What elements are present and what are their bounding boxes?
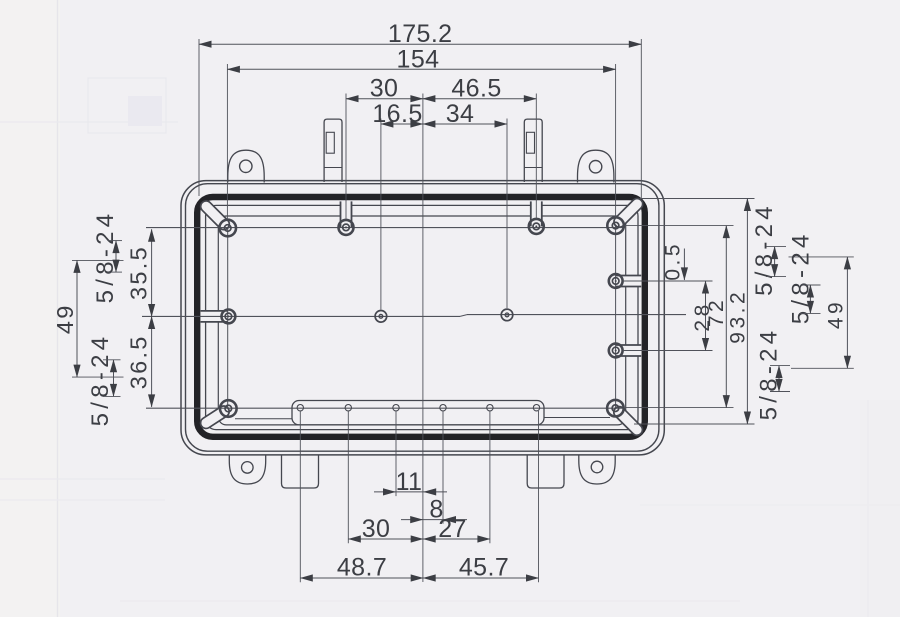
svg-text:5/8-24: 5/8-24 <box>751 202 778 296</box>
svg-text:72: 72 <box>705 297 728 327</box>
svg-text:93.2: 93.2 <box>727 289 750 344</box>
svg-text:45.7: 45.7 <box>459 554 509 582</box>
svg-text:30: 30 <box>362 515 391 543</box>
svg-text:49: 49 <box>825 299 848 329</box>
svg-text:35.5: 35.5 <box>126 245 152 300</box>
svg-text:49: 49 <box>52 303 78 334</box>
svg-text:46.5: 46.5 <box>451 75 501 103</box>
svg-text:175.2: 175.2 <box>388 20 453 48</box>
svg-text:27: 27 <box>438 515 467 543</box>
svg-text:30: 30 <box>370 75 399 103</box>
svg-text:36.5: 36.5 <box>126 334 152 389</box>
svg-text:0.5: 0.5 <box>662 241 685 281</box>
svg-text:154: 154 <box>397 45 440 73</box>
svg-text:34: 34 <box>446 100 475 128</box>
svg-text:48.7: 48.7 <box>337 554 387 582</box>
svg-text:5/8-24: 5/8-24 <box>92 210 119 304</box>
svg-text:5/8-24: 5/8-24 <box>87 333 114 427</box>
svg-text:16.5: 16.5 <box>372 100 422 128</box>
svg-text:11: 11 <box>396 468 423 496</box>
